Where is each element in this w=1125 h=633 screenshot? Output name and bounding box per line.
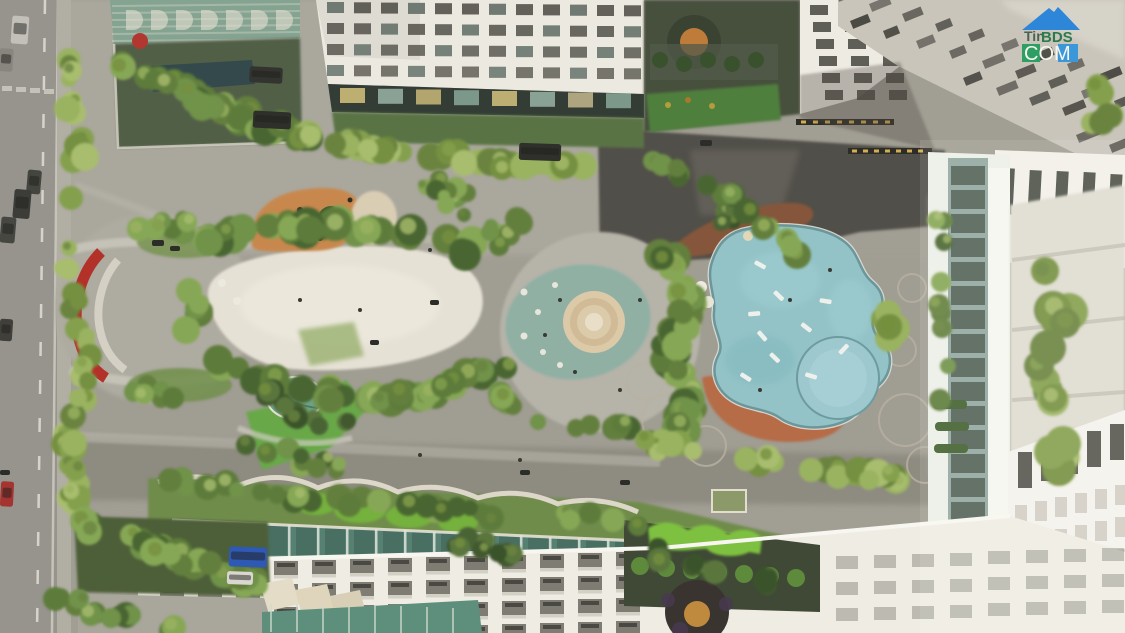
- svg-text:COM: COM: [1024, 43, 1071, 65]
